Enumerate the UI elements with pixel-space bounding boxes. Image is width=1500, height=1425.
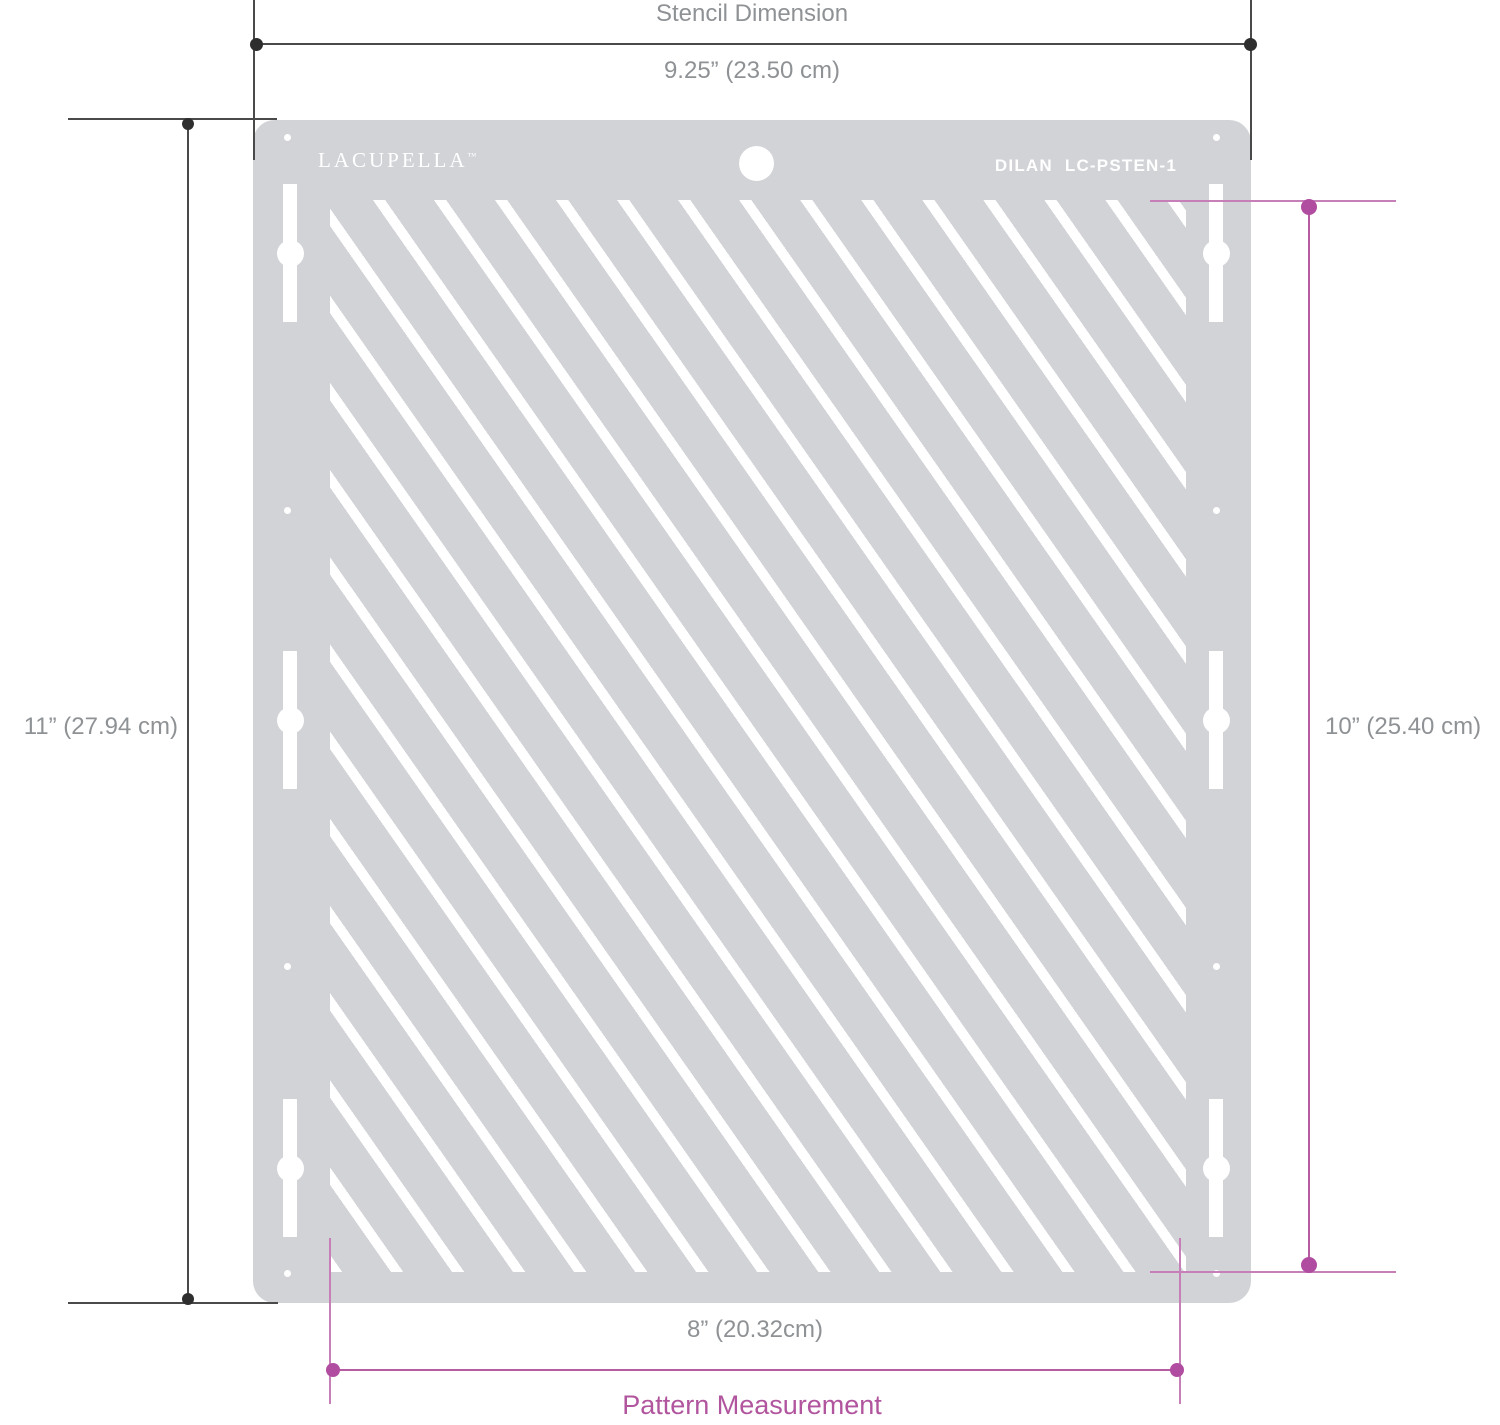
hanging-hole xyxy=(739,146,774,181)
pattern-height-label: 10” (25.40 cm) xyxy=(1325,713,1481,741)
extension-line xyxy=(1150,1271,1396,1273)
brand-trademark: ™ xyxy=(468,151,477,161)
stencil-dimension-title: Stencil Dimension xyxy=(502,0,1002,28)
registration-dot xyxy=(284,963,291,970)
dimension-endpoint-dot xyxy=(1301,199,1317,215)
registration-dot xyxy=(284,134,291,141)
stencil-plate: LACUPELLA™ DILANLC-PSTEN-1 xyxy=(253,120,1251,1303)
registration-dot xyxy=(1213,507,1220,514)
dimension-endpoint-dot xyxy=(1244,38,1257,51)
registration-slot xyxy=(283,184,297,322)
extension-line xyxy=(1250,0,1252,160)
model-code: LC-PSTEN-1 xyxy=(1065,156,1177,175)
dimension-endpoint-dot xyxy=(250,38,263,51)
registration-slot xyxy=(283,651,297,789)
stencil-height-dimension-line xyxy=(187,123,189,1300)
stencil-height-label: 11” (27.94 cm) xyxy=(0,713,178,741)
registration-dot xyxy=(284,1270,291,1277)
registration-slot xyxy=(1209,651,1223,789)
model-code-label: DILANLC-PSTEN-1 xyxy=(995,156,1177,176)
brand-name: LACUPELLA xyxy=(318,148,468,172)
extension-line xyxy=(329,1238,331,1404)
registration-dot xyxy=(284,507,291,514)
registration-dot xyxy=(1213,134,1220,141)
pattern-width-label: 8” (20.32cm) xyxy=(505,1316,1005,1344)
extension-line xyxy=(253,0,255,160)
registration-dot xyxy=(1213,963,1220,970)
extension-line xyxy=(68,118,277,120)
stencil-width-dimension-line xyxy=(255,43,1251,45)
pattern-width-dimension-line xyxy=(332,1369,1178,1371)
pattern-measurement-title: Pattern Measurement xyxy=(480,1390,1024,1421)
dimension-endpoint-dot xyxy=(182,118,194,130)
stencil-width-label: 9.25” (23.50 cm) xyxy=(502,57,1002,85)
dimension-endpoint-dot xyxy=(326,1363,340,1377)
registration-slot xyxy=(1209,1099,1223,1237)
diagonal-stripe-pattern xyxy=(330,200,1186,1272)
extension-line xyxy=(68,1302,278,1304)
dimension-endpoint-dot xyxy=(1301,1257,1317,1273)
registration-slot xyxy=(1209,184,1223,322)
brand-logo: LACUPELLA™ xyxy=(318,148,476,173)
extension-line xyxy=(1179,1238,1181,1404)
model-name: DILAN xyxy=(995,156,1053,175)
dimension-endpoint-dot xyxy=(182,1293,194,1305)
registration-slot xyxy=(283,1099,297,1237)
pattern-height-dimension-line xyxy=(1308,204,1310,1266)
extension-line xyxy=(1150,200,1396,202)
stencil-dimension-diagram: LACUPELLA™ DILANLC-PSTEN-1 Stencil Dimen… xyxy=(0,0,1500,1425)
dimension-endpoint-dot xyxy=(1170,1363,1184,1377)
